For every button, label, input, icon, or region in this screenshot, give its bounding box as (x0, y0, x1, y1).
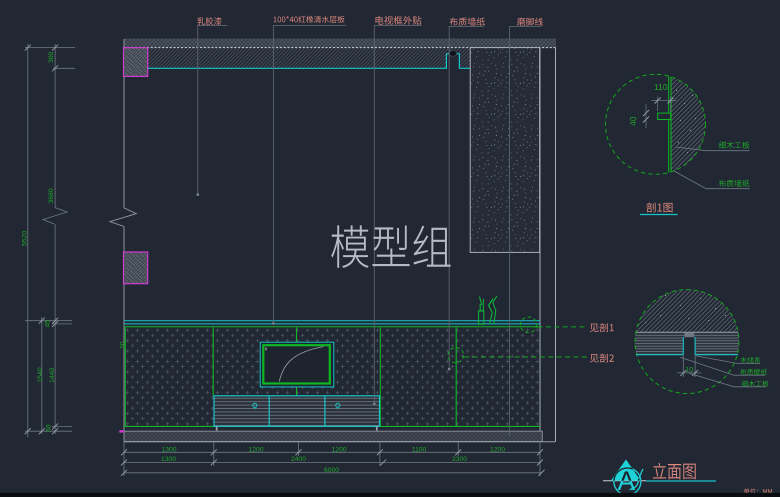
svg-text:40: 40 (628, 116, 638, 126)
svg-text:2400: 2400 (291, 456, 306, 463)
svg-text:1300: 1300 (161, 447, 176, 454)
svg-text:1100: 1100 (412, 447, 427, 454)
svg-text:20: 20 (120, 341, 127, 349)
svg-text:300: 300 (48, 51, 55, 63)
svg-text:1540: 1540 (37, 367, 44, 382)
svg-text:1200: 1200 (490, 447, 505, 454)
svg-text:1440: 1440 (49, 368, 56, 383)
svg-text:1200: 1200 (248, 447, 263, 454)
svg-text:1300: 1300 (161, 456, 176, 463)
svg-text:3680: 3680 (48, 188, 55, 203)
svg-text:1200: 1200 (331, 447, 346, 454)
svg-text:110: 110 (654, 82, 668, 92)
svg-text:5520: 5520 (22, 231, 29, 246)
svg-text:45: 45 (45, 320, 52, 328)
svg-text:60: 60 (46, 424, 53, 432)
svg-text:10: 10 (685, 365, 693, 374)
svg-text:2300: 2300 (452, 456, 467, 463)
svg-text:6000: 6000 (324, 467, 339, 474)
